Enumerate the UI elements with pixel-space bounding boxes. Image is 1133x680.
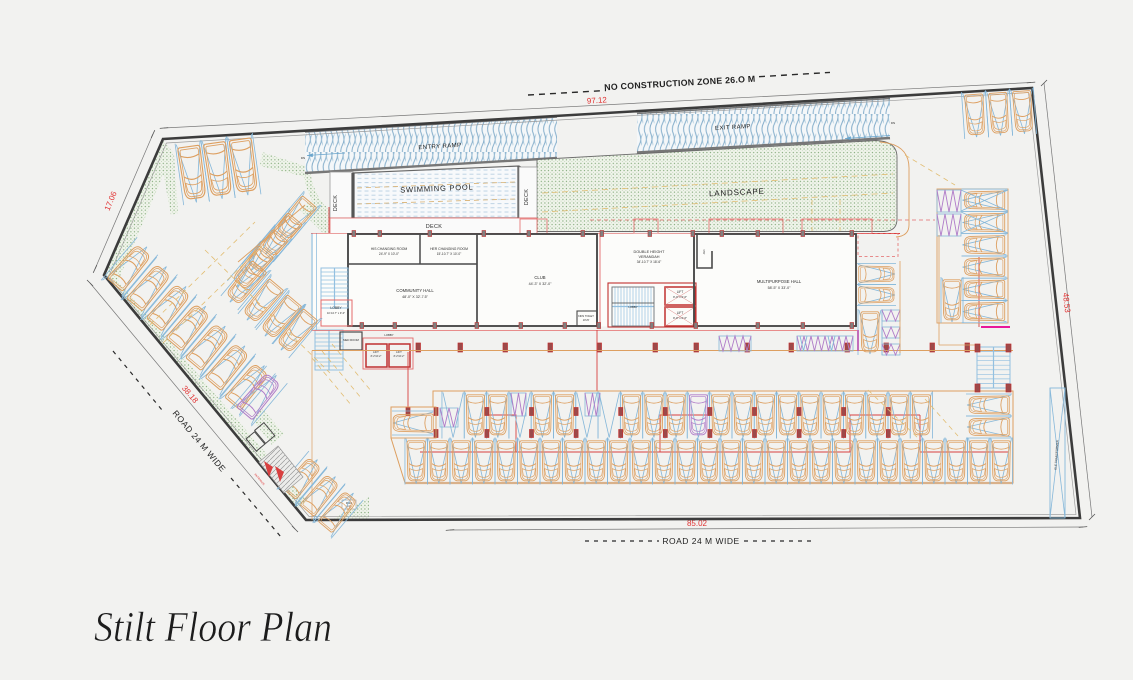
svg-text:DECK: DECK	[524, 189, 530, 206]
svg-text:DOUBLE HEIGHT: DOUBLE HEIGHT	[633, 250, 665, 254]
svg-text:ROAD 24 M WIDE: ROAD 24 M WIDE	[662, 536, 739, 546]
svg-text:MED ROOM: MED ROOM	[343, 338, 359, 342]
svg-text:DECK: DECK	[333, 195, 339, 212]
svg-text:8'-2"x6'-2": 8'-2"x6'-2"	[394, 355, 405, 358]
svg-text:COMMUNITY HALL: COMMUNITY HALL	[396, 288, 434, 293]
svg-text:Stilt Floor Plan: Stilt Floor Plan	[94, 605, 332, 651]
svg-text:10'x5': 10'x5'	[583, 318, 590, 322]
svg-text:HIS CHANGING ROOM: HIS CHANGING ROOM	[371, 247, 408, 251]
svg-text:10'-10.7" x 9'-0": 10'-10.7" x 9'-0"	[327, 311, 345, 315]
svg-text:48'-0" X 32'-7.5": 48'-0" X 32'-7.5"	[402, 295, 428, 299]
svg-text:44'-3" X 32'-0": 44'-3" X 32'-0"	[529, 282, 552, 286]
svg-text:VERANDAH: VERANDAH	[638, 255, 659, 259]
svg-text:58'-5" X 33'-0": 58'-5" X 33'-0"	[768, 286, 791, 290]
svg-text:DN: DN	[301, 156, 305, 160]
svg-text:34'-10.7" X 18'-6": 34'-10.7" X 18'-6"	[637, 260, 662, 264]
svg-text:LIFT: LIFT	[677, 290, 684, 294]
svg-text:KIDS TOILET: KIDS TOILET	[578, 314, 594, 318]
svg-text:15'-10.7" X 10'-0": 15'-10.7" X 10'-0"	[437, 252, 462, 256]
svg-text:85.02: 85.02	[687, 519, 708, 528]
svg-text:DN: DN	[891, 121, 895, 125]
svg-text:MULTIPURPOSE HALL: MULTIPURPOSE HALL	[757, 279, 802, 284]
svg-text:8'-2"x6'-2": 8'-2"x6'-2"	[371, 355, 382, 358]
svg-text:DECK: DECK	[426, 224, 443, 230]
svg-text:CLUB: CLUB	[534, 275, 545, 280]
svg-text:LIFT: LIFT	[677, 311, 684, 315]
svg-text:LOBBY: LOBBY	[628, 305, 637, 309]
svg-text:24'-9" X 10'-0": 24'-9" X 10'-0"	[379, 252, 399, 256]
svg-text:LOBBY: LOBBY	[330, 306, 342, 310]
svg-text:JAN: JAN	[702, 249, 706, 254]
svg-text:97.12: 97.12	[587, 95, 608, 105]
svg-text:HER CHANGING ROOM: HER CHANGING ROOM	[430, 247, 468, 251]
svg-text:9'-0" x 6'-6": 9'-0" x 6'-6"	[673, 295, 687, 299]
svg-text:9'-0" x 6'-6": 9'-0" x 6'-6"	[673, 316, 687, 320]
svg-text:LOBBY: LOBBY	[384, 333, 393, 337]
